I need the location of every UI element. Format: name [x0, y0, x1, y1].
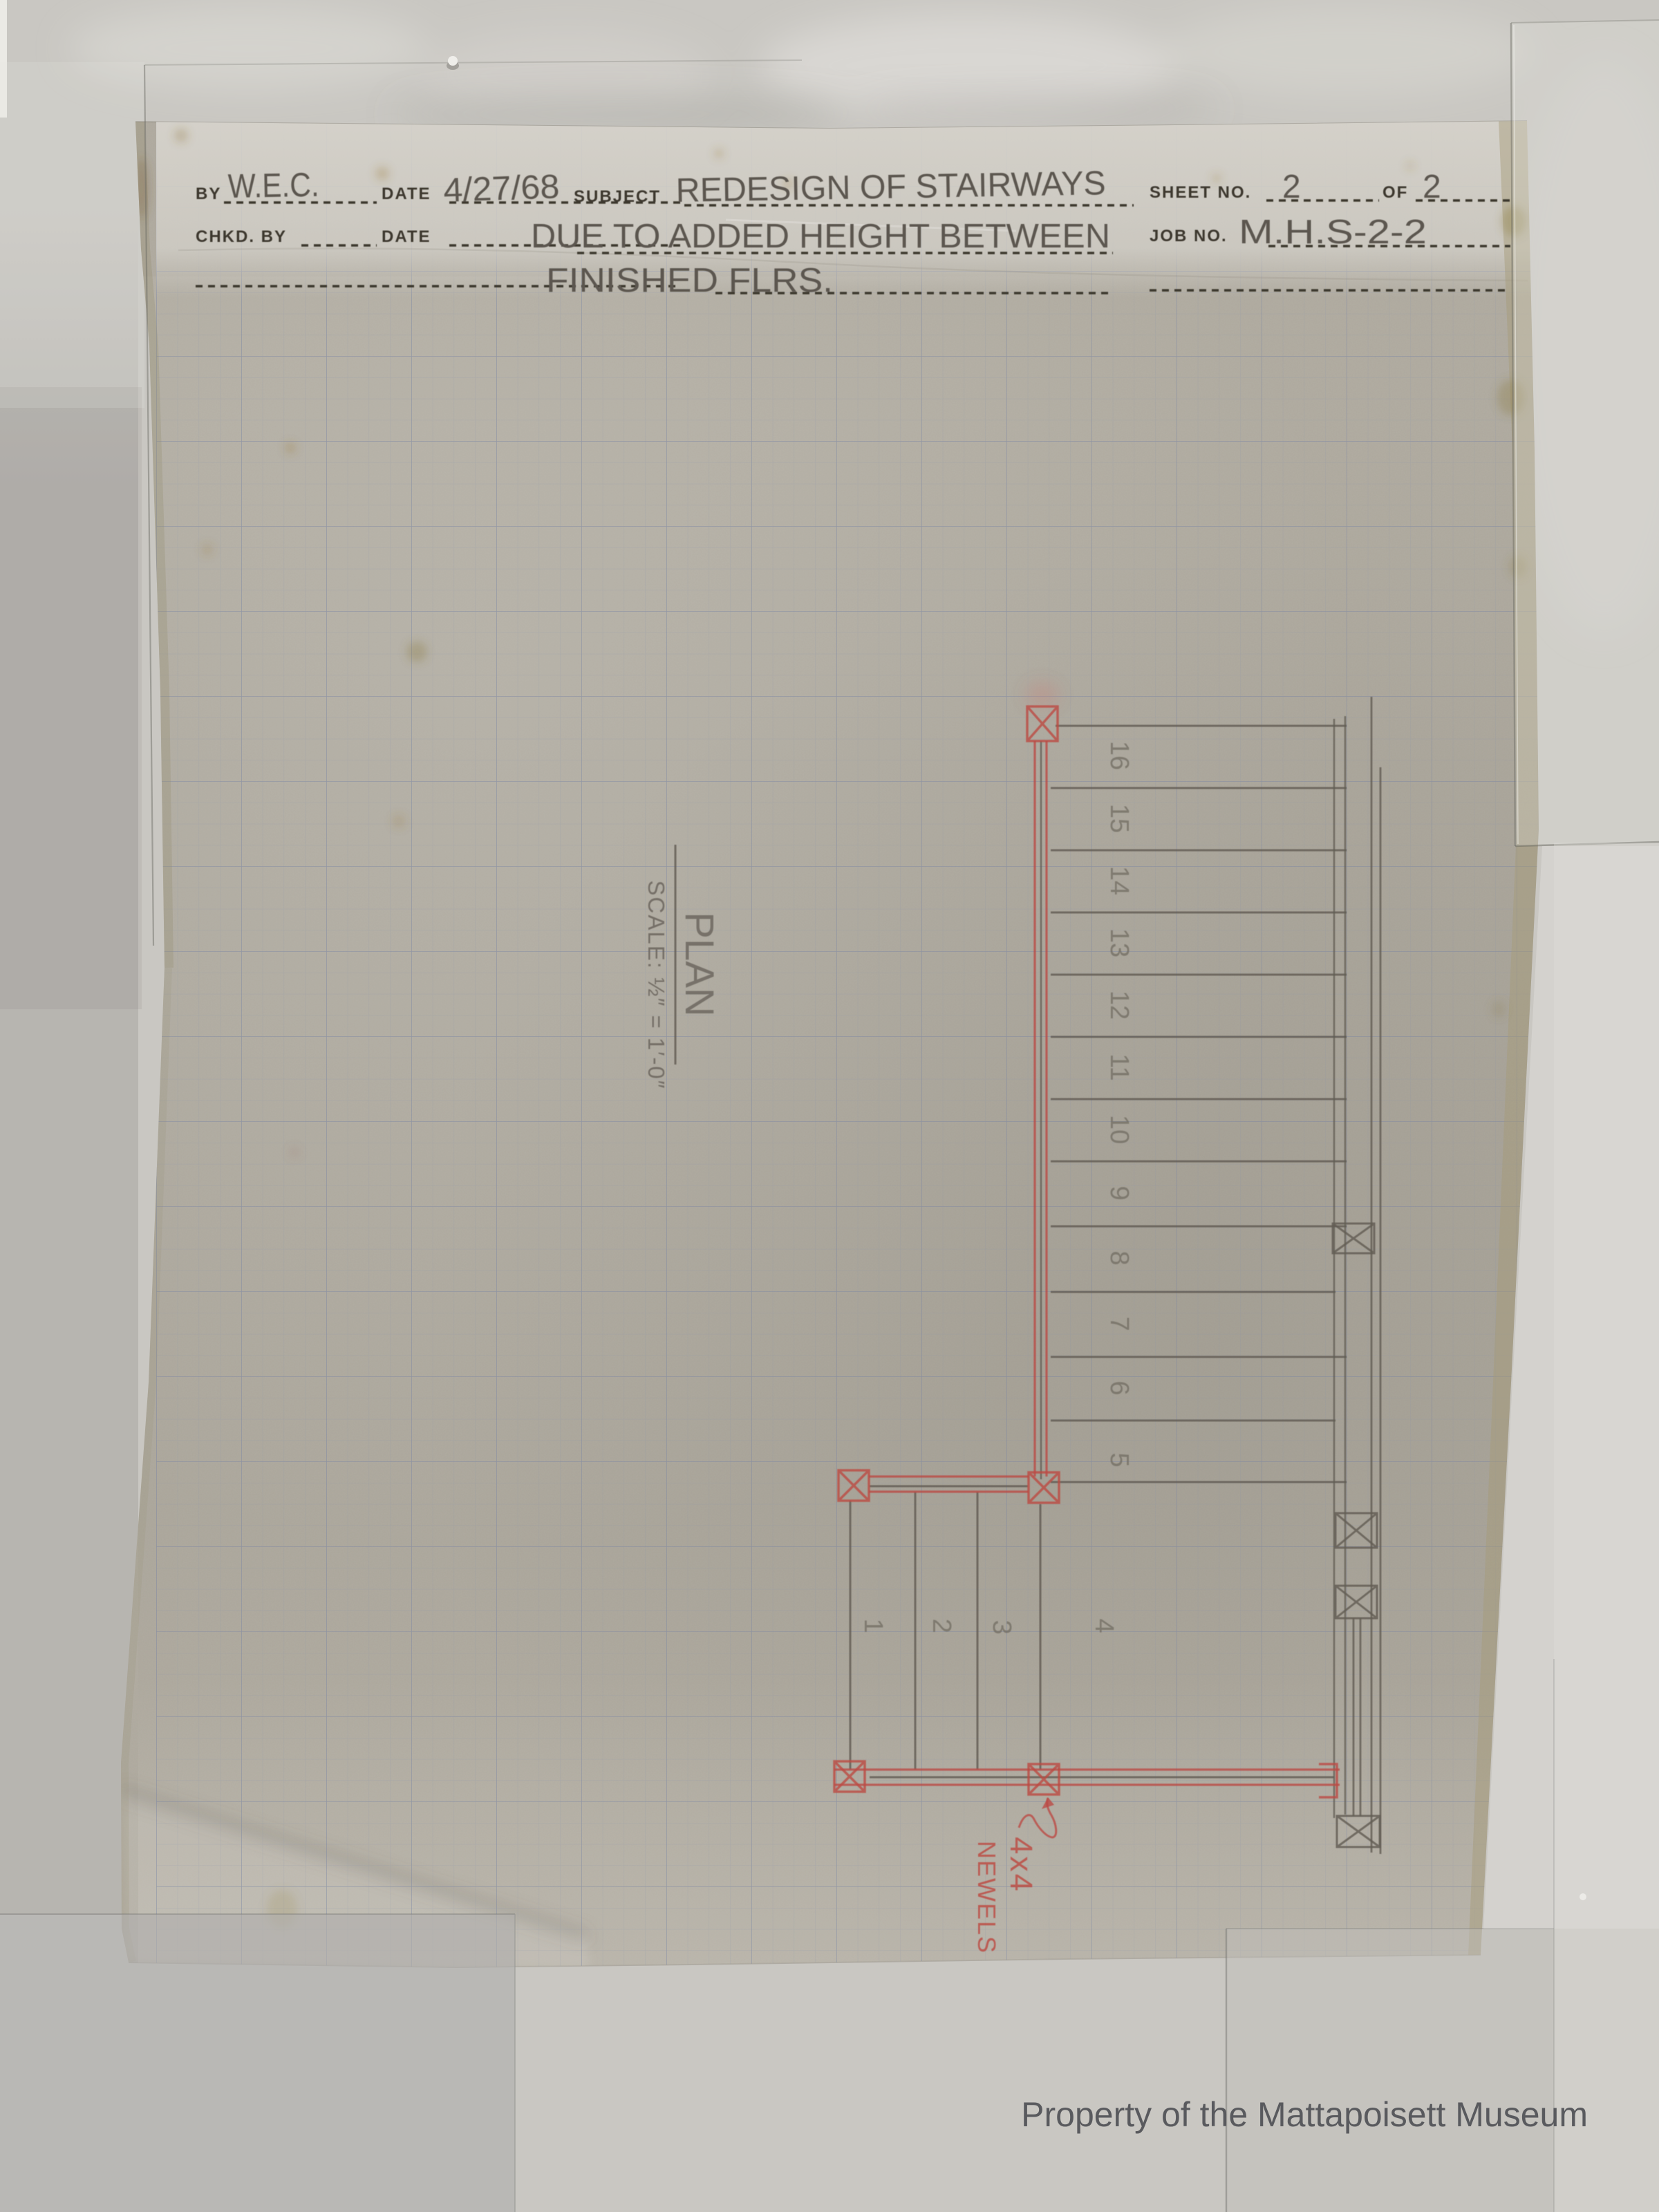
svg-text:3: 3	[987, 1620, 1016, 1634]
svg-text:4x4: 4x4	[1004, 1837, 1039, 1893]
svg-text:Property of the Mattapoisett M: Property of the Mattapoisett Museum	[1021, 2095, 1588, 2134]
svg-text:4/27/68: 4/27/68	[442, 168, 560, 209]
svg-text:7: 7	[1105, 1316, 1134, 1331]
svg-text:15: 15	[1105, 804, 1134, 833]
svg-text:11: 11	[1105, 1053, 1134, 1080]
svg-text:OF: OF	[1382, 183, 1408, 202]
svg-text:2: 2	[1282, 169, 1301, 205]
svg-text:FINISHED FLRS.: FINISHED FLRS.	[546, 262, 833, 299]
svg-text:8: 8	[1105, 1250, 1134, 1265]
svg-text:JOB NO.: JOB NO.	[1150, 227, 1228, 245]
svg-text:2: 2	[927, 1618, 956, 1633]
svg-text:2: 2	[1423, 169, 1441, 205]
svg-text:14: 14	[1105, 866, 1134, 895]
svg-text:DUE TO ADDED HEIGHT BETWEEN: DUE TO ADDED HEIGHT BETWEEN	[531, 218, 1110, 255]
svg-text:SUBJECT: SUBJECT	[574, 187, 661, 206]
svg-text:PLAN: PLAN	[677, 912, 722, 1017]
svg-text:DATE: DATE	[382, 227, 431, 246]
svg-text:10: 10	[1105, 1115, 1134, 1144]
svg-text:BY: BY	[196, 185, 221, 203]
svg-text:12: 12	[1105, 991, 1134, 1020]
svg-text:SCALE: ½″ = 1′-0″: SCALE: ½″ = 1′-0″	[644, 881, 669, 1090]
svg-text:9: 9	[1105, 1185, 1134, 1200]
svg-text:W.E.C.: W.E.C.	[227, 167, 319, 205]
svg-text:16: 16	[1105, 741, 1134, 770]
svg-text:6: 6	[1105, 1380, 1134, 1395]
svg-text:CHKD. BY: CHKD. BY	[196, 227, 287, 246]
svg-text:REDESIGN OF STAIRWAYS: REDESIGN OF STAIRWAYS	[675, 165, 1106, 209]
svg-text:NEWELS: NEWELS	[973, 1841, 1001, 1954]
svg-text:DATE: DATE	[382, 185, 431, 203]
svg-text:13: 13	[1105, 928, 1134, 957]
svg-text:4: 4	[1089, 1618, 1118, 1633]
svg-text:1: 1	[859, 1618, 888, 1633]
svg-text:5: 5	[1105, 1452, 1134, 1467]
svg-text:SHEET NO.: SHEET NO.	[1150, 183, 1251, 202]
